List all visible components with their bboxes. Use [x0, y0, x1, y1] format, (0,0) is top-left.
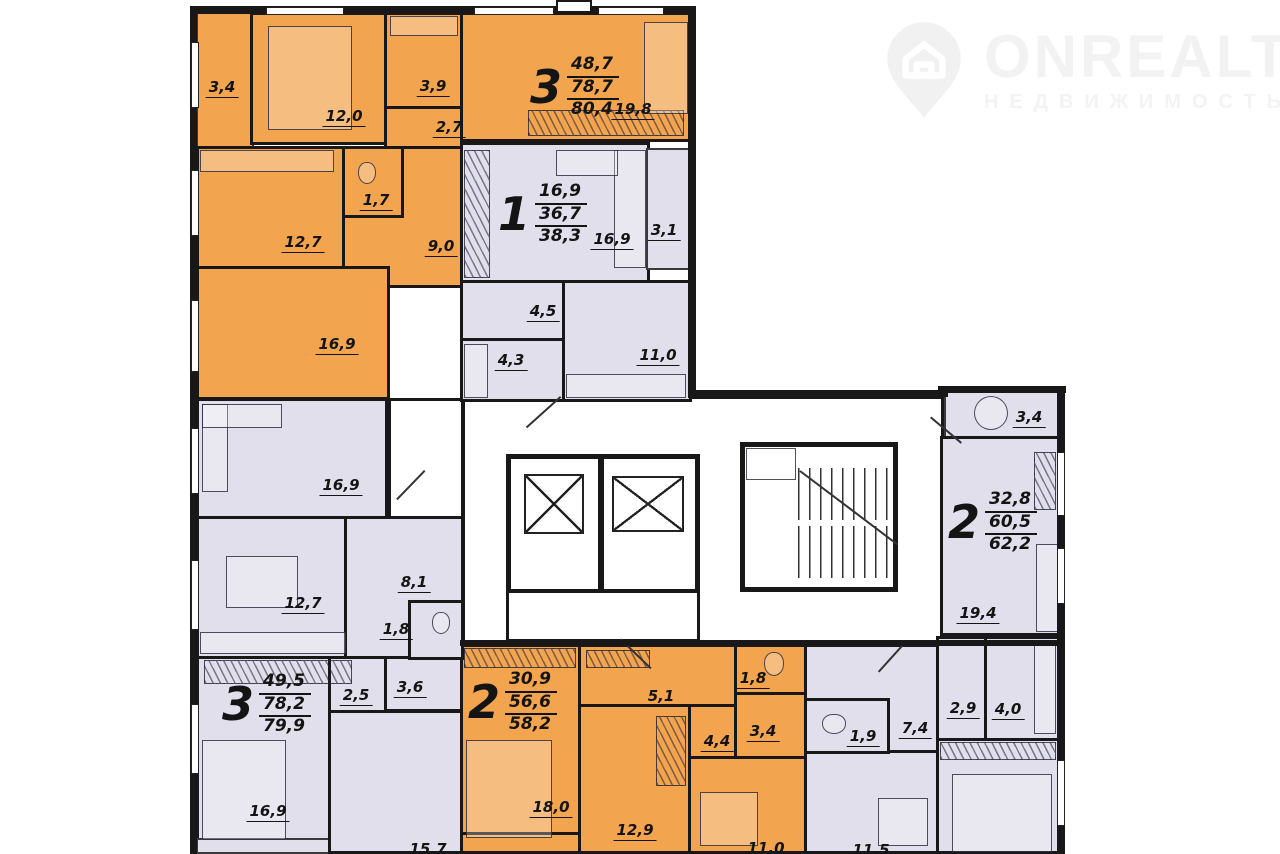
kitchen-counter [566, 374, 686, 398]
stair-flight [798, 468, 892, 520]
window [191, 428, 199, 494]
wardrobe [656, 716, 686, 786]
kitchen-counter [1036, 544, 1058, 632]
room-area-label: 12,7 [281, 233, 324, 253]
window [598, 7, 664, 15]
window [191, 300, 199, 372]
window [1057, 548, 1065, 604]
room-area-label: 1,8 [380, 620, 413, 640]
apartment-label-3-bottom: 3 49,5 78,2 79,9 [222, 672, 311, 738]
brand-text: ONREALT [984, 27, 1280, 87]
room-area-label: 16,9 [319, 476, 362, 496]
living-area: 16,9 [535, 182, 587, 205]
apartment-rooms-count: 3 [530, 68, 562, 107]
window [1057, 760, 1065, 826]
room-area-label: 4,0 [992, 700, 1025, 720]
roof-vent [556, 0, 592, 13]
living-area: 48,7 [567, 55, 619, 78]
wardrobe [464, 648, 576, 668]
room-area-label: 16,9 [246, 802, 289, 822]
balcony-table [974, 396, 1008, 430]
room-area-label: 1,7 [360, 191, 393, 211]
floor-plan: ONREALT НЕДВИЖИМОСТЬ [0, 0, 1280, 854]
window [191, 560, 199, 630]
elevator-shaft-icon [612, 476, 684, 532]
elevator-divider-wall [598, 458, 604, 590]
apartment-area: 78,7 [567, 78, 619, 101]
apartment-rooms-count: 2 [468, 683, 500, 722]
onrealt-logo: ONREALT НЕДВИЖИМОСТЬ [878, 20, 1280, 120]
room-area-label: 12,7 [281, 594, 324, 614]
room-area-label: 4,4 [701, 732, 734, 752]
elevator-lobby [506, 590, 700, 642]
living-area: 49,5 [259, 672, 311, 695]
total-area: 62,2 [985, 535, 1037, 556]
outer-wall [460, 640, 1060, 646]
sofa [556, 150, 618, 176]
apartment-label-3-top: 3 48,7 78,7 80,4 [530, 55, 619, 121]
window [191, 42, 199, 108]
elevator-shaft-icon [524, 474, 584, 534]
room-area-label: 2,9 [947, 699, 980, 719]
total-area: 38,3 [535, 227, 587, 248]
total-area: 58,2 [505, 715, 557, 736]
living-area: 32,8 [985, 490, 1037, 513]
bathtub [464, 344, 488, 398]
kitchen-counter [200, 150, 334, 172]
window [1057, 452, 1065, 516]
bed [202, 740, 286, 840]
toilet [432, 612, 450, 634]
apartment-area: 36,7 [535, 205, 587, 228]
apartment-area: 56,6 [505, 693, 557, 716]
room-hallway-2-9 [936, 636, 988, 742]
room-area-label: 3,1 [648, 221, 681, 241]
room-area-label: 4,3 [495, 351, 528, 371]
window [191, 704, 199, 774]
wardrobe [464, 150, 490, 278]
room-area-label: 11,5 [849, 841, 892, 854]
room-area-label: 12,0 [322, 107, 365, 127]
room-area-label: 3,4 [206, 78, 239, 98]
room-living-16-9-top [196, 266, 390, 400]
apartment-rooms-count: 2 [948, 503, 980, 542]
room-area-label: 9,0 [425, 237, 458, 257]
dining-table [878, 798, 928, 846]
room-area-label: 15,7 [406, 840, 449, 854]
apartment-area: 60,5 [985, 513, 1037, 536]
room-area-label: 16,9 [315, 335, 358, 355]
tagline-text: НЕДВИЖИМОСТЬ [984, 91, 1280, 114]
room-area-label: 3,4 [1013, 408, 1046, 428]
room-area-label: 1,9 [847, 727, 880, 747]
room-area-label: 8,1 [398, 573, 431, 593]
bathtub [1034, 644, 1056, 734]
outer-wall [938, 386, 1066, 393]
room-area-label: 1,8 [737, 669, 770, 689]
window [266, 7, 344, 15]
apartment-label-2-right: 2 32,8 60,5 62,2 [948, 490, 1037, 556]
bed [952, 774, 1052, 852]
room-area-label: 19,4 [956, 604, 999, 624]
stair-flight [798, 526, 892, 578]
apartment-area: 78,2 [259, 695, 311, 718]
apartment-rooms-count: 3 [222, 685, 254, 724]
room-area-label: 18,0 [529, 798, 572, 818]
window [191, 170, 199, 236]
apartment-label-2-bottom: 2 30,9 56,6 58,2 [468, 670, 557, 736]
living-area: 30,9 [505, 670, 557, 693]
corridor-branch [388, 398, 464, 520]
room-area-label: 7,4 [899, 719, 932, 739]
room-area-label: 2,5 [340, 686, 373, 706]
outer-wall [690, 390, 948, 397]
room-area-label: 16,9 [590, 230, 633, 250]
toilet [822, 714, 846, 734]
bed [466, 740, 552, 838]
room-area-label: 3,6 [394, 678, 427, 698]
total-area: 79,9 [259, 717, 311, 738]
toilet [358, 162, 376, 184]
house-pin-icon [878, 20, 970, 120]
room-balcony-strip [196, 838, 336, 854]
dining-table [700, 792, 758, 846]
window [474, 7, 554, 15]
room-area-label: 11,0 [744, 839, 787, 854]
wardrobe [940, 742, 1056, 760]
wardrobe [1034, 452, 1056, 510]
apartment-rooms-count: 1 [498, 195, 530, 234]
room-area-label: 19,8 [611, 100, 654, 120]
stair-landing [746, 448, 796, 480]
room-area-label: 11,0 [636, 346, 679, 366]
bathtub [390, 16, 458, 36]
room-15-7 [328, 710, 464, 854]
room-area-label: 4,5 [527, 302, 560, 322]
room-area-label: 2,7 [433, 118, 466, 138]
sofa [202, 404, 282, 428]
room-area-label: 3,9 [417, 77, 450, 97]
room-area-label: 5,1 [645, 687, 678, 707]
outer-wall [688, 6, 696, 398]
room-area-label: 3,4 [747, 722, 780, 742]
kitchen-counter [200, 632, 346, 654]
sofa [614, 150, 646, 268]
apartment-label-1: 1 16,9 36,7 38,3 [498, 182, 587, 248]
room-area-label: 12,9 [613, 821, 656, 841]
